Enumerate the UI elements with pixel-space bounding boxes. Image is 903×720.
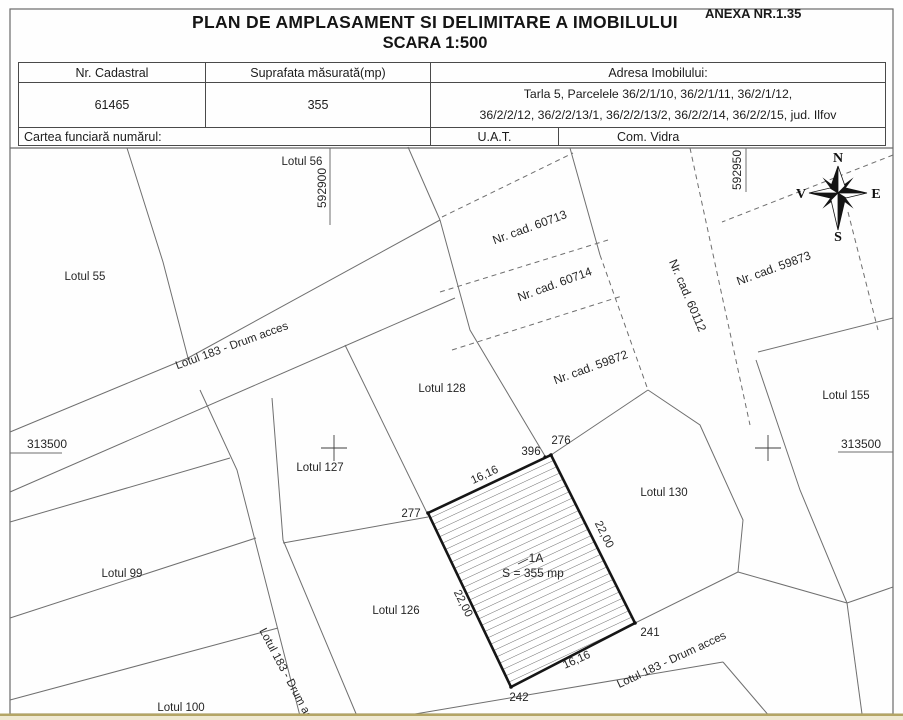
lot-label-128: Lotul 128: [418, 383, 465, 395]
header-measured-area: Suprafata măsurată(mp): [206, 63, 431, 83]
lot-label-100: Lotul 100: [157, 702, 204, 714]
cad-label-60714: Nr. cad. 60714: [516, 264, 594, 304]
cad-label-60112: Nr. cad. 60112: [666, 257, 709, 334]
address-line-1: Tarla 5, Parcelele 36/2/1/10, 36/2/1/11,…: [524, 84, 792, 105]
parcel-point-276: 276: [551, 435, 570, 447]
cad-label-59873: Nr. cad. 59873: [735, 248, 813, 288]
address-line-2: 36/2/2/12, 36/2/2/13/1, 36/2/2/13/2, 36/…: [480, 105, 837, 126]
uat-label: U.A.T.: [431, 128, 559, 145]
cadastral-plan-page: Lotul 56 592900 592950 Nr. cad. 60713 Nr…: [0, 0, 903, 720]
parcel-point-396: 396: [521, 446, 540, 458]
annex-number: ANEXA NR.1.35: [705, 6, 890, 21]
easting-left-label: 592900: [315, 168, 329, 208]
page-scale: SCARA 1:500: [0, 34, 870, 53]
lot-label-99: Lotul 99: [102, 568, 143, 580]
compass-north-label: N: [833, 151, 843, 166]
lot-label-130: Lotul 130: [640, 487, 687, 499]
land-book-label: Cartea funciară numărul:: [19, 128, 431, 145]
value-cadastral-number: 61465: [19, 83, 206, 128]
header-address: Adresa Imobilului:: [431, 63, 885, 83]
lot-label-126: Lotul 126: [372, 605, 419, 617]
northing-right-label: 313500: [841, 437, 881, 451]
compass-west-label: V: [796, 187, 806, 202]
value-measured-area: 355: [206, 83, 431, 128]
compass-east-label: E: [871, 187, 880, 202]
value-address: Tarla 5, Parcelele 36/2/1/10, 36/2/1/11,…: [431, 83, 885, 128]
lot-label-55: Lotul 55: [65, 271, 106, 283]
easting-right-label: 592950: [730, 150, 744, 190]
lot-label-56: Lotul 56: [282, 156, 323, 168]
parcel-point-277: 277: [401, 508, 420, 520]
header-cadastral-number: Nr. Cadastral: [19, 63, 206, 83]
road-label-lower: Lotul 183 - Drum acces: [615, 630, 728, 691]
parcel-id-label: 1A: [529, 551, 544, 565]
northing-left-label: 313500: [27, 437, 67, 451]
uat-value: Com. Vidra: [559, 128, 885, 145]
road-label-vertical: Lotul 183 - Drum acces: [256, 626, 323, 720]
lot-label-155: Lotul 155: [822, 390, 869, 402]
lot-label-127: Lotul 127: [296, 462, 343, 474]
scan-edge-strip: [0, 714, 903, 720]
cad-label-59872: Nr. cad. 59872: [552, 347, 630, 387]
compass-rose: N E S V: [796, 151, 881, 245]
parcel-point-241: 241: [640, 627, 659, 639]
cad-label-60713: Nr. cad. 60713: [491, 207, 569, 247]
parcel-boundary-lines: [10, 147, 893, 717]
property-info-table: Nr. Cadastral Suprafata măsurată(mp) Adr…: [18, 62, 886, 146]
parcel-point-242: 242: [509, 692, 528, 704]
compass-south-label: S: [834, 230, 842, 245]
road-label-upper: Lotul 183 - Drum acces: [174, 320, 290, 372]
parcel-area-label: S = 355 mp: [502, 566, 564, 580]
